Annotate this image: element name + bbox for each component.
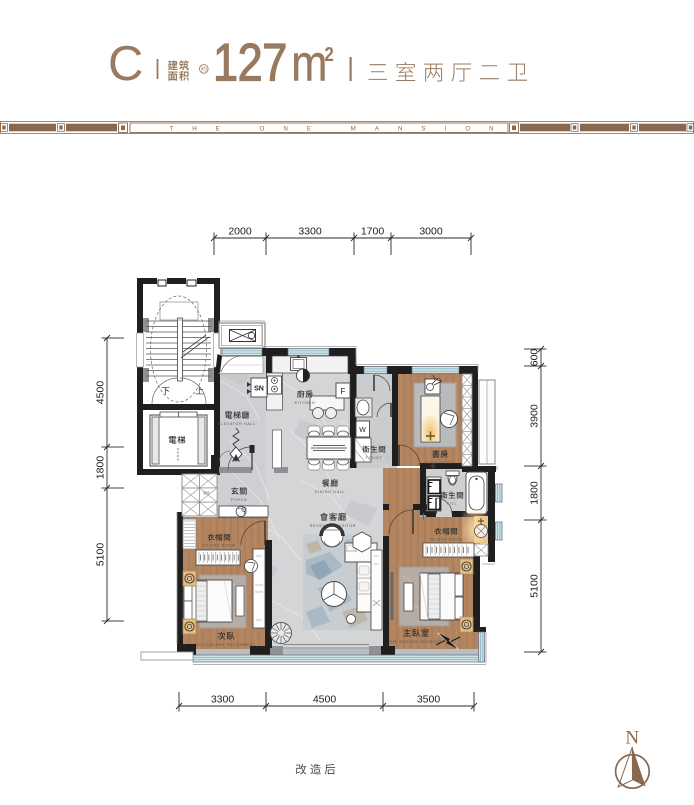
- svg-text:TO.OAK ROOM: TO.OAK ROOM: [202, 544, 235, 548]
- svg-text:3300: 3300: [211, 694, 235, 706]
- svg-text:RECEIVE & VISITOR: RECEIVE & VISITOR: [310, 524, 356, 528]
- svg-text:5100: 5100: [95, 543, 107, 567]
- svg-text:N: N: [625, 728, 639, 749]
- svg-text:1700: 1700: [361, 226, 385, 238]
- svg-text:3500: 3500: [417, 694, 441, 706]
- svg-text:TO.OAK ROOM: TO.OAK ROOM: [429, 538, 462, 542]
- svg-text:DINING HALL: DINING HALL: [315, 490, 345, 494]
- svg-text:4500: 4500: [95, 381, 107, 405]
- svg-text:THE MASTER BEDROOM: THE MASTER BEDROOM: [388, 640, 443, 644]
- svg-text:KITCHEN: KITCHEN: [295, 401, 316, 405]
- svg-text:ELEVATOR HALL: ELEVATOR HALL: [218, 422, 256, 426]
- svg-text:活动: 活动: [203, 490, 209, 495]
- svg-text:1800: 1800: [95, 456, 107, 480]
- svg-text:C: C: [108, 37, 143, 91]
- svg-text:PORCH: PORCH: [231, 498, 247, 502]
- svg-text:5100: 5100: [529, 574, 541, 598]
- svg-text:127: 127: [213, 33, 287, 92]
- svg-text:SECONDARY RECUMBENT: SECONDARY RECUMBENT: [196, 643, 256, 647]
- svg-text:TOILET: TOILET: [366, 456, 383, 460]
- svg-text:BOOK ROOM: BOOK ROOM: [426, 461, 455, 465]
- svg-text:W: W: [359, 427, 366, 434]
- svg-text:3900: 3900: [529, 404, 541, 428]
- svg-text:KILL: KILL: [447, 502, 457, 506]
- svg-text:4500: 4500: [313, 694, 337, 706]
- svg-text:F: F: [341, 387, 346, 396]
- svg-text:THE ONE MANSION: THE ONE MANSION: [169, 125, 512, 132]
- svg-text:2000: 2000: [228, 226, 252, 238]
- svg-text:600: 600: [529, 349, 541, 367]
- svg-text:m: m: [291, 35, 327, 92]
- svg-text:2: 2: [324, 43, 333, 66]
- svg-text:3000: 3000: [419, 226, 443, 238]
- svg-text:SN: SN: [254, 386, 264, 393]
- svg-text:1800: 1800: [529, 481, 541, 505]
- svg-text:3300: 3300: [298, 226, 322, 238]
